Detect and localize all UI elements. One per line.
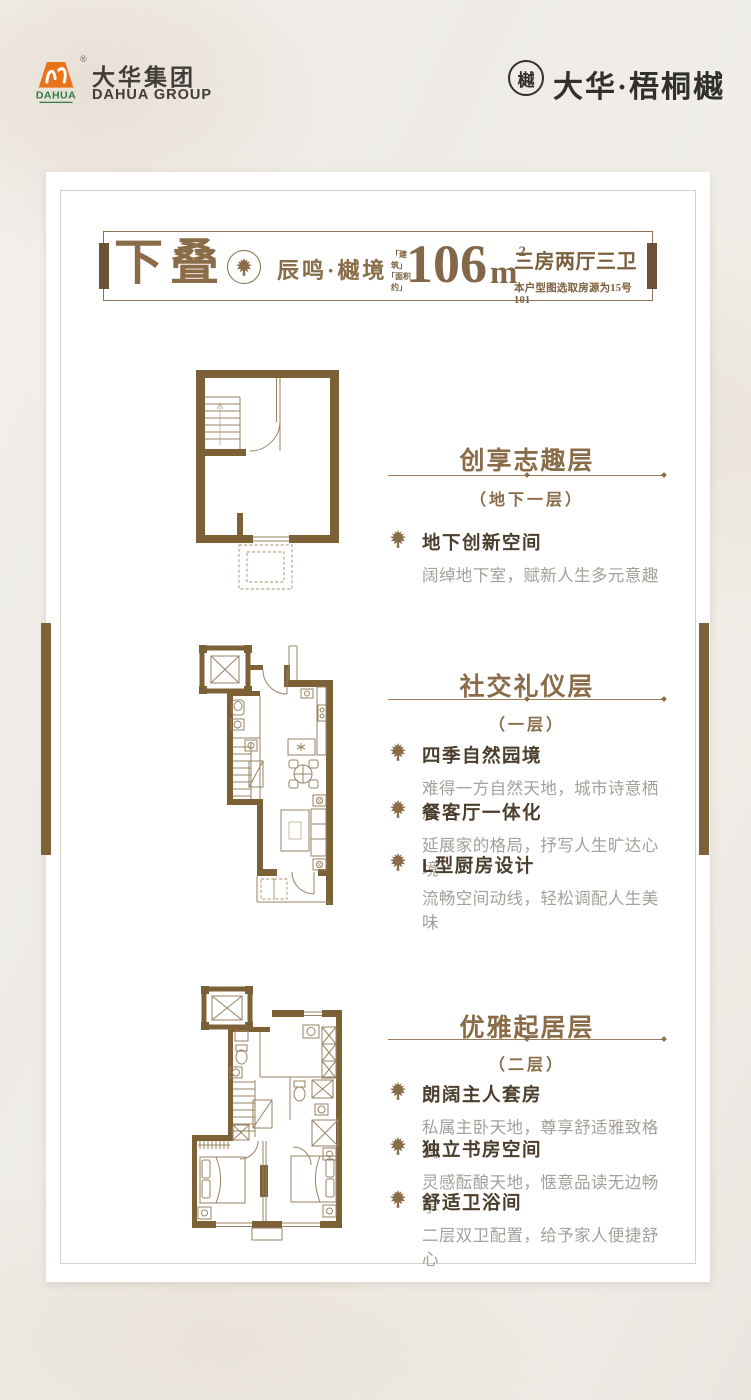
maple-leaf-icon: [388, 799, 408, 819]
feature-desc: 流畅空间动线，轻松调配人生美味: [422, 885, 666, 933]
section-divider: [388, 475, 666, 476]
maple-leaf-icon: [388, 1136, 408, 1156]
maple-leaf-icon: [388, 1081, 408, 1101]
area-value: 106m2: [406, 240, 526, 290]
floorplan-basement: [190, 363, 346, 595]
feature-item: 地下创新空间 阔绰地下室，赋新人生多元意趣: [388, 529, 666, 586]
maple-leaf-icon: [388, 529, 408, 549]
project-logo: 樾 大华·梧桐樾: [508, 60, 728, 104]
titlebar-right-bar: [647, 243, 657, 289]
poster: DAHUA ® 大华集团 DAHUA GROUP 樾 大华·梧桐樾 下叠 辰鸣·…: [0, 0, 751, 1400]
maple-leaf-icon: [388, 1189, 408, 1209]
unit-type: 下叠: [114, 238, 226, 287]
feature-title: 舒适卫浴间: [422, 1189, 666, 1215]
section-floor-first: （一层）: [388, 711, 666, 735]
dahua-logo-icon: DAHUA: [34, 56, 78, 112]
svg-text:DAHUA: DAHUA: [36, 90, 76, 102]
feature-title: 四季自然园境: [422, 742, 666, 768]
room-config: 三房两厅三卫 本户型图选取房源为15号101: [514, 245, 648, 306]
feature-title: 独立书房空间: [422, 1136, 666, 1162]
left-accent-bar: [41, 623, 51, 855]
dahua-group-logo: DAHUA ® 大华集团 DAHUA GROUP: [34, 56, 294, 116]
feature-title: 朗阔主人套房: [422, 1081, 666, 1107]
series-name: 辰鸣·樾境: [277, 253, 387, 285]
registered-mark: ®: [80, 54, 87, 64]
unit-title-bar: 下叠 辰鸣·樾境 「建 筑」 「面积约」 106m2 三房两厅三卫 本户型图选取…: [103, 231, 653, 301]
brand-name-en: DAHUA GROUP: [92, 87, 212, 103]
feature-item: 舒适卫浴间 二层双卫配置，给予家人便捷舒心: [388, 1189, 666, 1270]
source-note: 本户型图选取房源为15号101: [514, 280, 648, 306]
maple-leaf-badge-icon: [227, 250, 261, 284]
section-floor-second: （二层）: [388, 1051, 666, 1075]
right-accent-bar: [699, 623, 709, 855]
feature-item: L型厨房设计 流畅空间动线，轻松调配人生美味: [388, 852, 666, 933]
feature-title: 餐客厅一体化: [422, 799, 666, 825]
section-divider: [388, 699, 666, 700]
floorplan-first-floor: [163, 643, 365, 930]
feature-title: L型厨房设计: [422, 852, 666, 878]
feature-title: 地下创新空间: [422, 529, 666, 555]
project-name: 大华·梧桐樾: [553, 62, 725, 106]
feature-desc: 二层双卫配置，给予家人便捷舒心: [422, 1222, 666, 1270]
floorplan-second-floor: [160, 985, 365, 1260]
maple-leaf-icon: [388, 742, 408, 762]
titlebar-left-bar: [99, 243, 109, 289]
maple-leaf-icon: [388, 852, 408, 872]
seal-character: 樾: [518, 66, 535, 91]
seal-icon: 樾: [508, 60, 544, 96]
feature-desc: 阔绰地下室，赋新人生多元意趣: [422, 562, 666, 586]
section-floor-basement: （地下一层）: [388, 486, 666, 510]
section-divider: [388, 1039, 666, 1040]
